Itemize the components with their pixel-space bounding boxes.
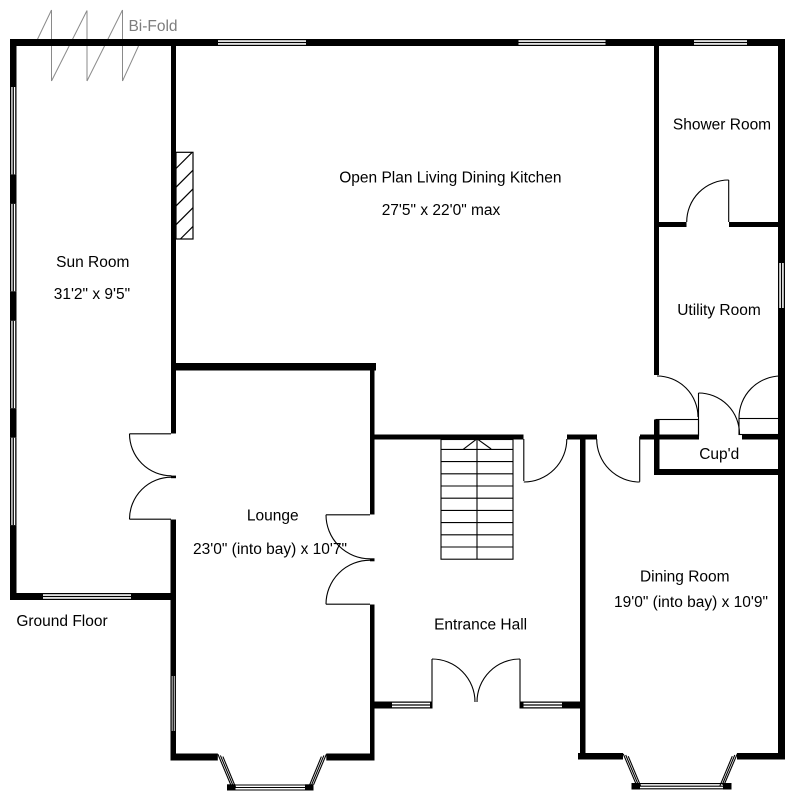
svg-text:Ground Floor: Ground Floor [16,613,107,630]
svg-text:19'0" (into bay) x 10'9": 19'0" (into bay) x 10'9" [614,594,768,611]
svg-text:Lounge: Lounge [247,508,299,525]
svg-text:Bi-Fold: Bi-Fold [128,18,177,35]
svg-text:Entrance Hall: Entrance Hall [434,617,527,634]
svg-text:Sun Room: Sun Room [56,254,129,271]
svg-text:31'2" x 9'5": 31'2" x 9'5" [54,286,130,303]
svg-text:Shower Room: Shower Room [673,117,771,134]
svg-text:27'5" x 22'0" max: 27'5" x 22'0" max [382,202,501,219]
svg-text:Utility Room: Utility Room [677,302,761,319]
svg-text:Dining Room: Dining Room [640,569,730,586]
svg-text:23'0" (into bay) x 10'7": 23'0" (into bay) x 10'7" [193,541,347,558]
svg-text:Cup'd: Cup'd [699,446,739,463]
svg-text:Open Plan Living Dining Kitche: Open Plan Living Dining Kitchen [339,170,561,187]
